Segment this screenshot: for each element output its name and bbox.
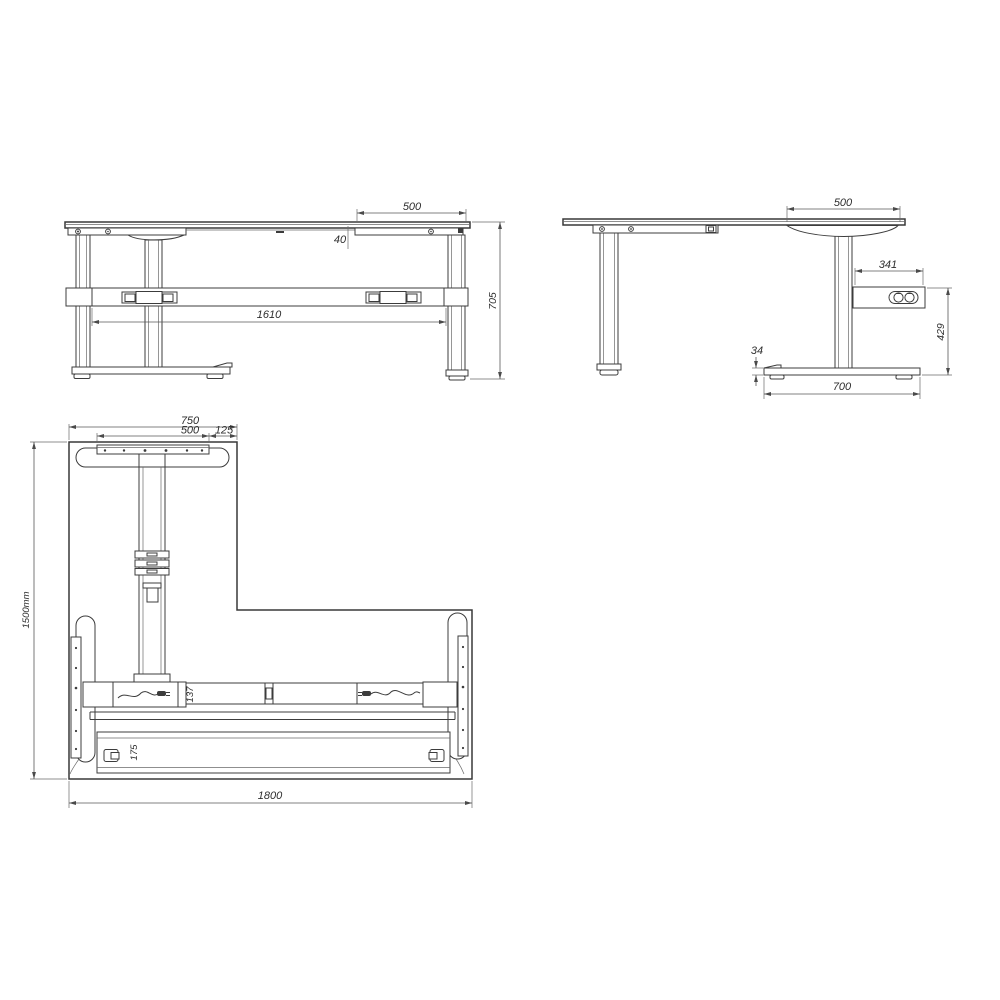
- front-right-foot: [446, 370, 468, 380]
- plan-dim-overall-depth: 1500mm: [21, 442, 67, 779]
- technical-drawing: 500 40 1610 705: [0, 0, 1000, 1000]
- side-dim-box-floor-height: 429: [922, 288, 952, 375]
- plan-lower-rails: [90, 712, 455, 720]
- plug-left: [157, 691, 166, 696]
- dim-text-side-34: 34: [751, 345, 763, 357]
- side-foot: [764, 365, 920, 379]
- plan-right-plate: [458, 636, 468, 756]
- side-desktop: [563, 219, 905, 225]
- dim-text-side-700: 700: [833, 381, 852, 393]
- side-control-box: [853, 287, 925, 308]
- dim-text-front-40: 40: [334, 234, 347, 246]
- plan-top-bracket-plate: [97, 445, 209, 454]
- plan-dim-beam-width: 137: [185, 686, 196, 703]
- plan-column: [134, 454, 170, 683]
- dim-text-plan-1500mm: 1500mm: [21, 591, 32, 628]
- front-dim-overall-height: 705: [470, 222, 505, 379]
- front-dim-bracket-width: 500: [357, 201, 466, 221]
- front-crossbar: [66, 288, 468, 306]
- side-top-bracket: [787, 226, 898, 237]
- plan-dim-edge-offset: 125: [209, 425, 237, 437]
- plan-view: 750 500 125 1500mm 137 175 1800: [21, 415, 472, 808]
- plan-dim-rail-width: 175: [129, 744, 140, 761]
- dim-text-plan-1800: 1800: [258, 790, 283, 802]
- side-view: 500 341 429 34 700: [563, 197, 952, 399]
- clip-right-tab: [429, 753, 437, 760]
- side-left-leg: [597, 233, 621, 375]
- front-mounting-rails: [68, 228, 463, 240]
- plan-left-plate: [71, 637, 81, 758]
- dim-text-side-500: 500: [834, 197, 853, 209]
- plan-desktop-outline: [69, 442, 472, 779]
- plan-crossbeam: [83, 682, 457, 707]
- dim-text-front-1610: 1610: [257, 309, 282, 321]
- front-dim-bracket-drop: 40: [334, 226, 348, 249]
- dim-text-plan-137: 137: [185, 686, 196, 703]
- side-dim-foot-length: 700: [764, 377, 920, 399]
- dim-text-front-705: 705: [487, 292, 499, 310]
- drawing-canvas: 500 40 1610 705: [0, 0, 1000, 1000]
- plug-right: [362, 691, 371, 696]
- dim-text-plan-175: 175: [129, 744, 140, 761]
- side-dim-foot-height: 34: [751, 345, 763, 386]
- dim-text-side-429: 429: [935, 323, 947, 341]
- dim-text-side-341: 341: [879, 259, 897, 271]
- dim-text-plan-125: 125: [215, 425, 234, 437]
- plan-bottom-bar: [97, 732, 450, 773]
- side-dim-control-box-width: 341: [855, 259, 923, 285]
- front-left-foot: [72, 363, 232, 379]
- side-mounting-rail: [593, 225, 718, 233]
- side-right-leg: [835, 236, 852, 368]
- dim-text-plan-500: 500: [181, 425, 200, 437]
- front-view: 500 40 1610 705: [65, 201, 505, 380]
- dim-text-front-500: 500: [403, 201, 422, 213]
- front-desktop: [65, 222, 470, 228]
- plan-dim-overall-width: 1800: [69, 781, 472, 808]
- clip-left-tab: [111, 753, 119, 760]
